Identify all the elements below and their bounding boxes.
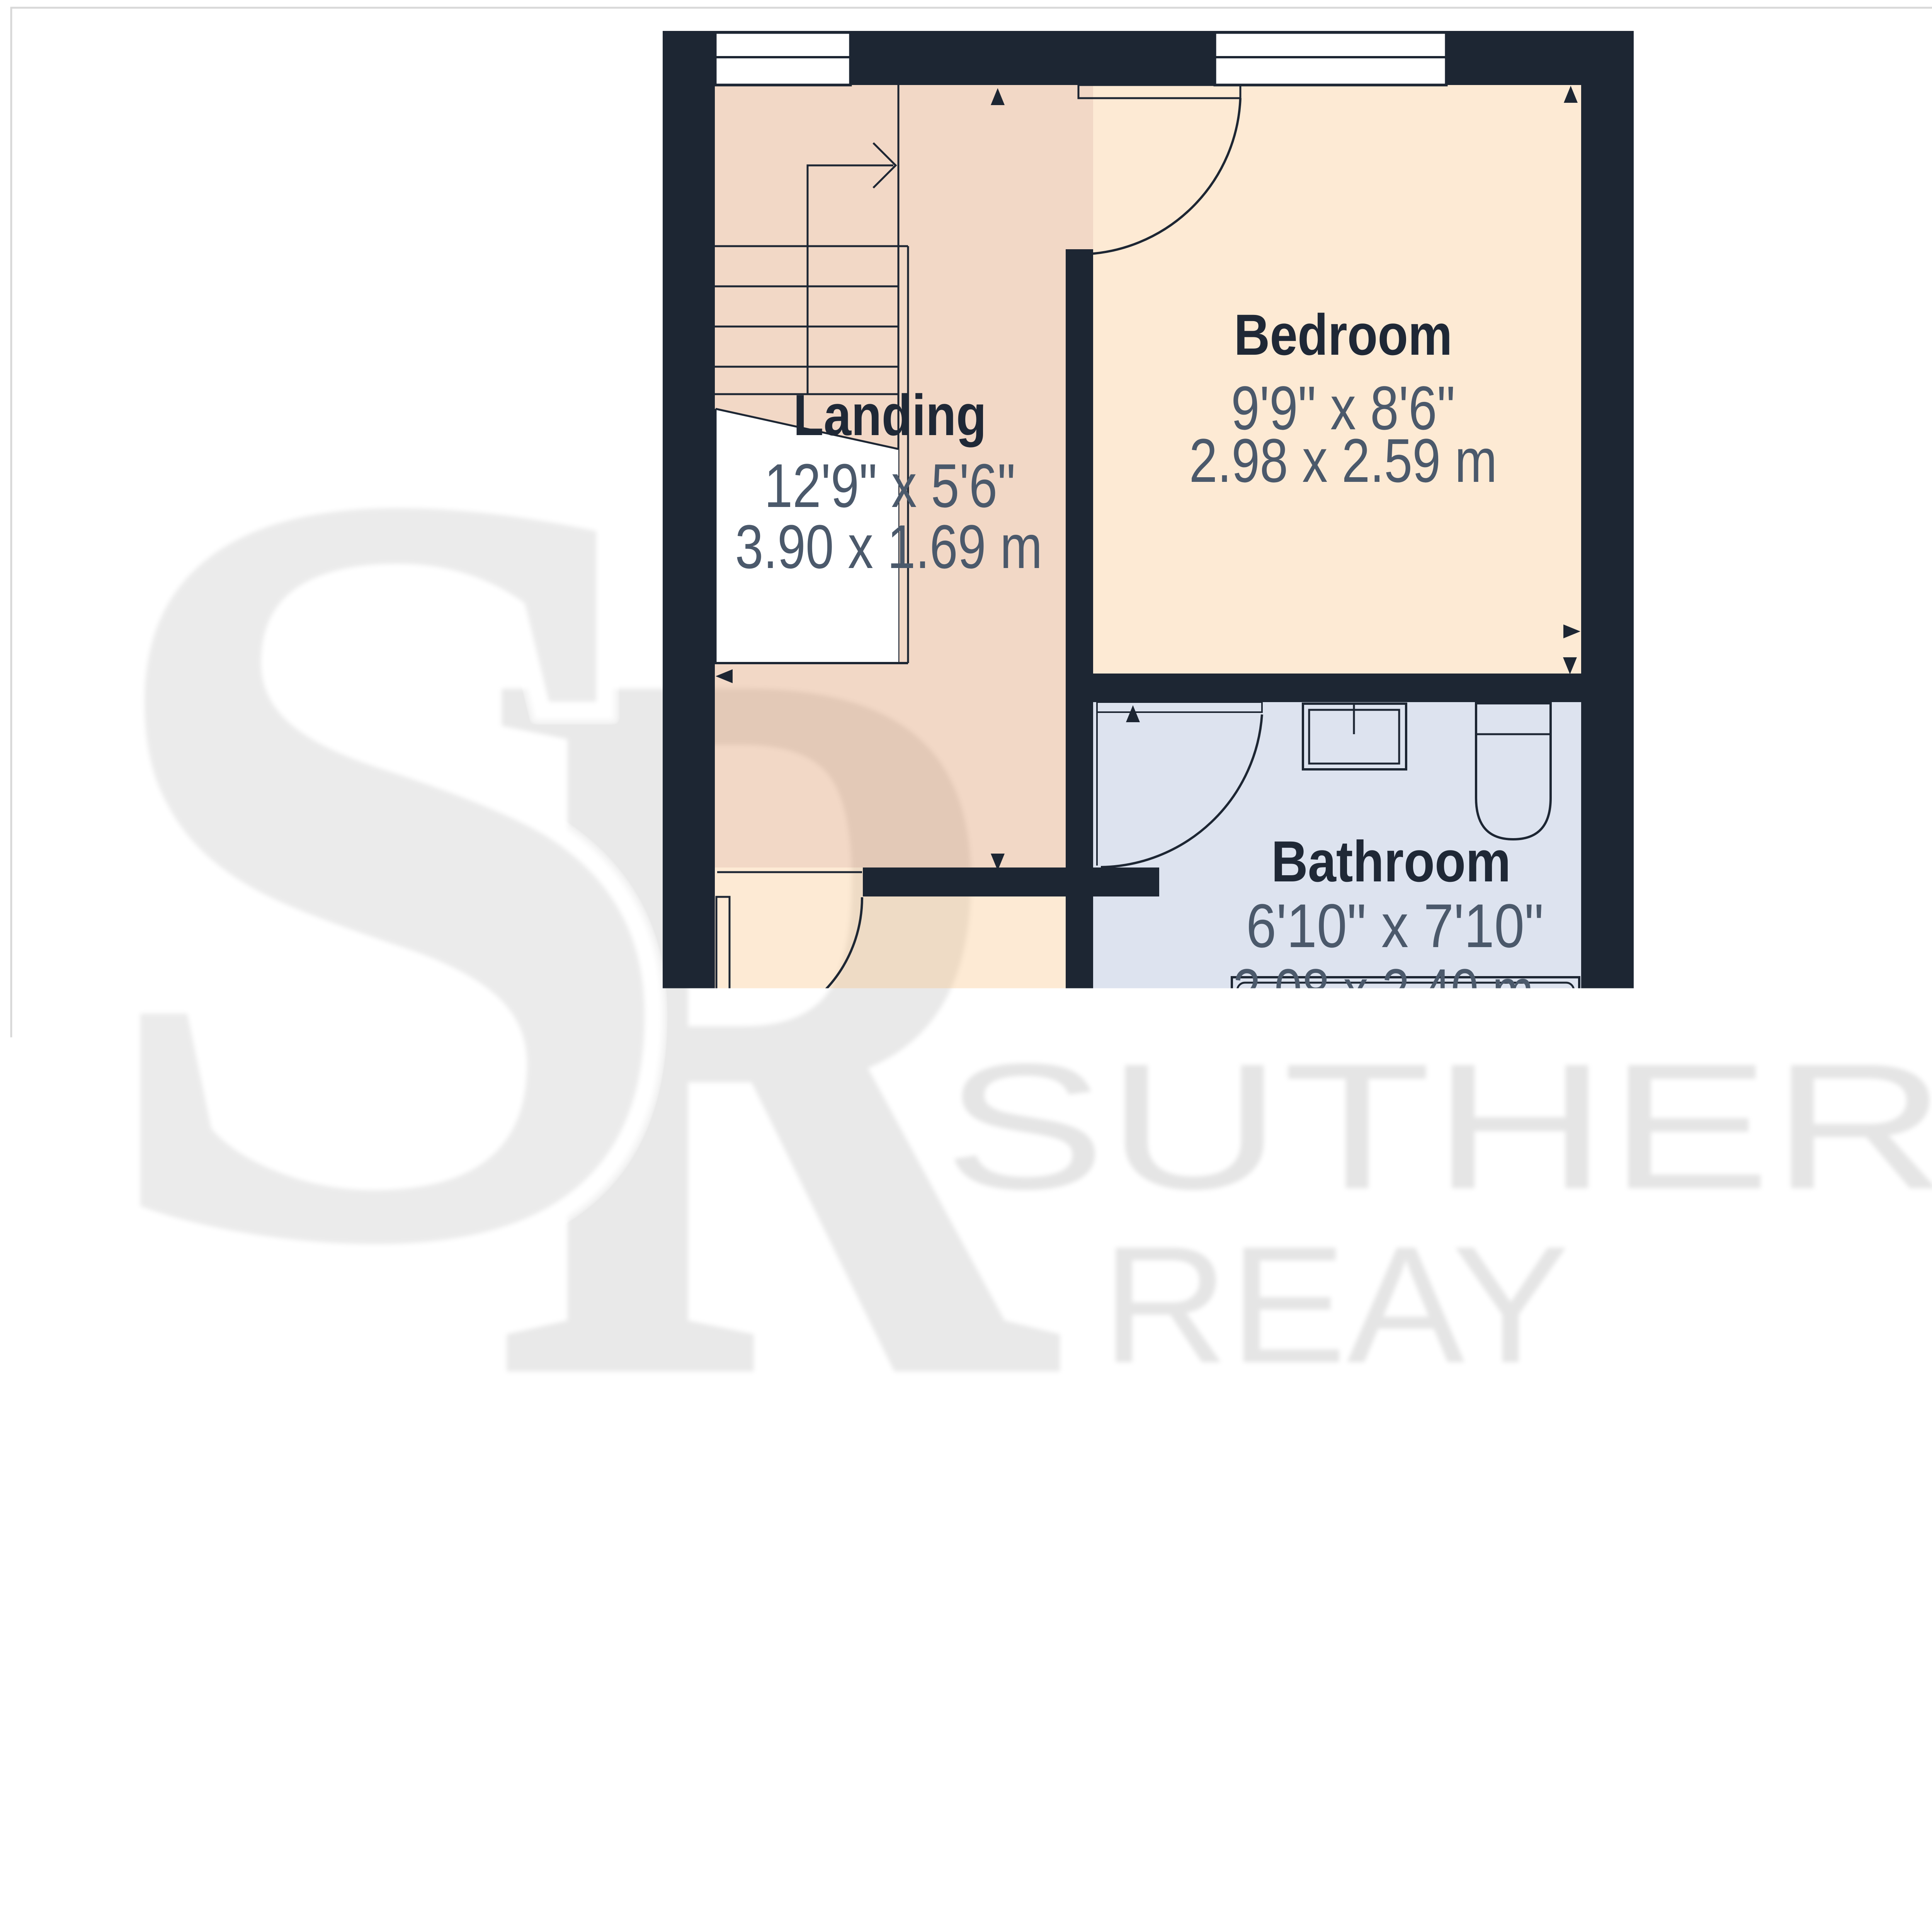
svg-text:N: N xyxy=(100,1749,114,1770)
svg-text:S: S xyxy=(82,258,691,1471)
svg-text:2.08 x 2.40 m: 2.08 x 2.40 m xyxy=(1233,956,1534,1025)
svg-text:Bedroom: Bedroom xyxy=(1013,1357,1230,1422)
svg-text:E: E xyxy=(161,1776,173,1796)
svg-text:Bathroom: Bathroom xyxy=(1271,829,1511,894)
svg-text:6'10" x 7'10": 6'10" x 7'10" xyxy=(1246,891,1544,960)
svg-text:3.90 x 1.69 m: 3.90 x 1.69 m xyxy=(735,512,1043,581)
svg-text:Landing: Landing xyxy=(793,383,986,447)
svg-text:Floor 1: Floor 1 xyxy=(1107,1857,1189,1890)
svg-text:2.98 x 2.59 m: 2.98 x 2.59 m xyxy=(1189,426,1497,495)
svg-text:12'9" x 5'6": 12'9" x 5'6" xyxy=(764,451,1015,520)
svg-text:W: W xyxy=(75,1809,92,1829)
svg-text:3.19 x 4.42 m: 3.19 x 4.42 m xyxy=(969,1483,1276,1552)
svg-text:Bedroom: Bedroom xyxy=(1234,302,1452,367)
svg-text:S: S xyxy=(135,1830,148,1851)
